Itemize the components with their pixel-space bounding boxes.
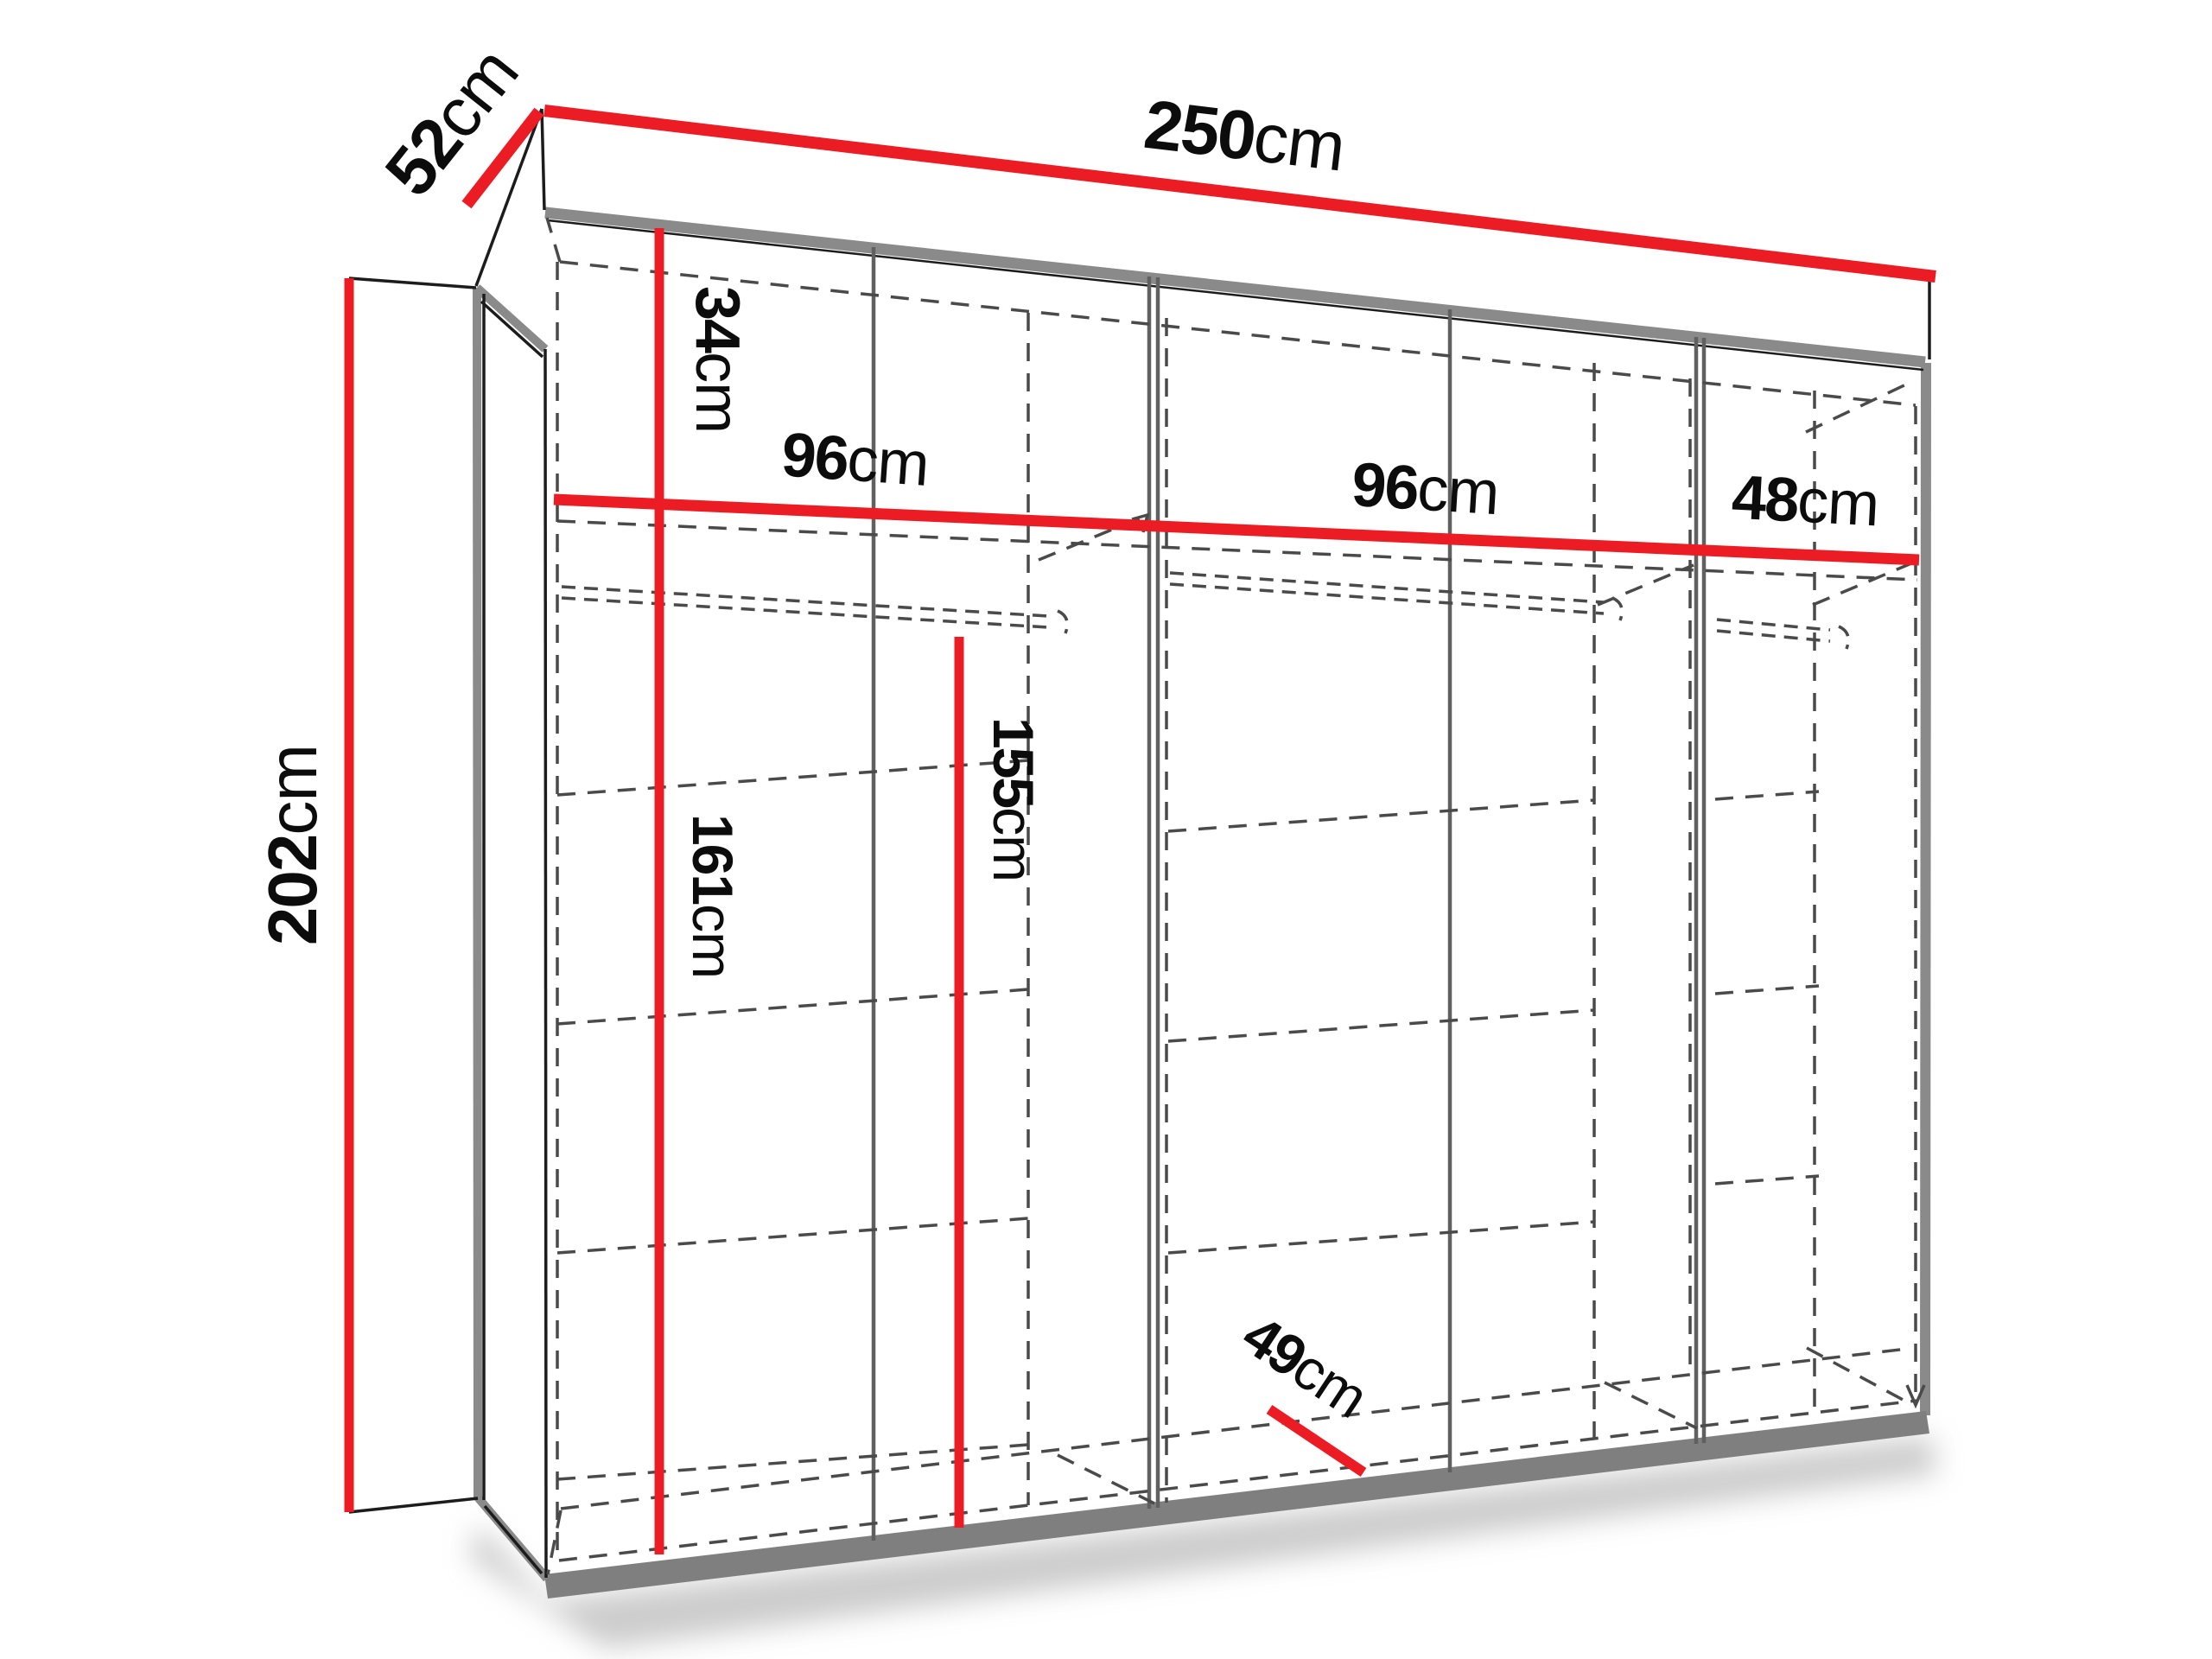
tick-height-bottom — [349, 1498, 478, 1512]
shelf-dashed-line — [1168, 1222, 1594, 1253]
label-left-section-width: 96cm — [779, 420, 931, 499]
label-floor-depth: 49cm — [1231, 1302, 1378, 1429]
label-top-depth: 52cm — [371, 34, 533, 210]
floor-shadow — [468, 1436, 1937, 1649]
shelf-dashed-line — [1715, 1176, 1819, 1184]
tick-height-top — [349, 278, 476, 288]
rod-left-end-hook — [1058, 611, 1067, 633]
shelf-dashed-line — [1168, 800, 1594, 831]
rod-right-end-hook — [1839, 626, 1848, 649]
dashed-arrowheads — [1132, 515, 1924, 1405]
label-right-section-width: 48cm — [1730, 463, 1880, 540]
edge-left-top-inner-diagonal — [481, 302, 543, 357]
depth-diagonal — [1605, 1382, 1697, 1428]
edge-right-front — [1925, 363, 1926, 1415]
shelf-dashed-line — [1715, 791, 1819, 799]
depth-diagonal — [1806, 382, 1911, 432]
shelf-dashed-line — [1715, 986, 1819, 994]
hanging-rods — [562, 573, 1848, 649]
depth-diagonal — [547, 218, 560, 262]
label-left-inner-height: 161cm — [681, 814, 745, 978]
label-mid-section-width: 96cm — [1350, 450, 1501, 528]
edge-top-slab-left-vertical — [542, 109, 544, 210]
label-total-height: 202cm — [254, 745, 331, 945]
edge-opening-top — [548, 220, 1923, 370]
label-top-section-height: 34cm — [683, 286, 752, 433]
rod-middle-top — [1170, 573, 1604, 602]
rod-right-top — [1717, 620, 1830, 630]
edge-bottom-front — [544, 1411, 1929, 1599]
shelf-dashed-line — [1168, 1010, 1594, 1041]
edge-left-inner-vertical — [545, 349, 546, 1578]
label-mid-inner-height: 155cm — [982, 717, 1046, 881]
shadow-shape — [468, 1436, 1937, 1649]
depth-diagonal — [1813, 563, 1911, 605]
wardrobe-dimension-diagram: 250cm 52cm 202cm 34cm 96cm 96cm 48cm 161… — [0, 0, 2212, 1659]
label-total-width: 250cm — [1141, 86, 1349, 186]
wardrobe-thin-edges — [349, 109, 1929, 1578]
edge-left-panel-front — [477, 288, 478, 1497]
rod-middle-end-hook — [1612, 598, 1622, 620]
diagram-canvas: 250cm 52cm 202cm 34cm 96cm 96cm 48cm 161… — [0, 0, 2212, 1659]
edge-left-panel-top — [477, 288, 545, 349]
